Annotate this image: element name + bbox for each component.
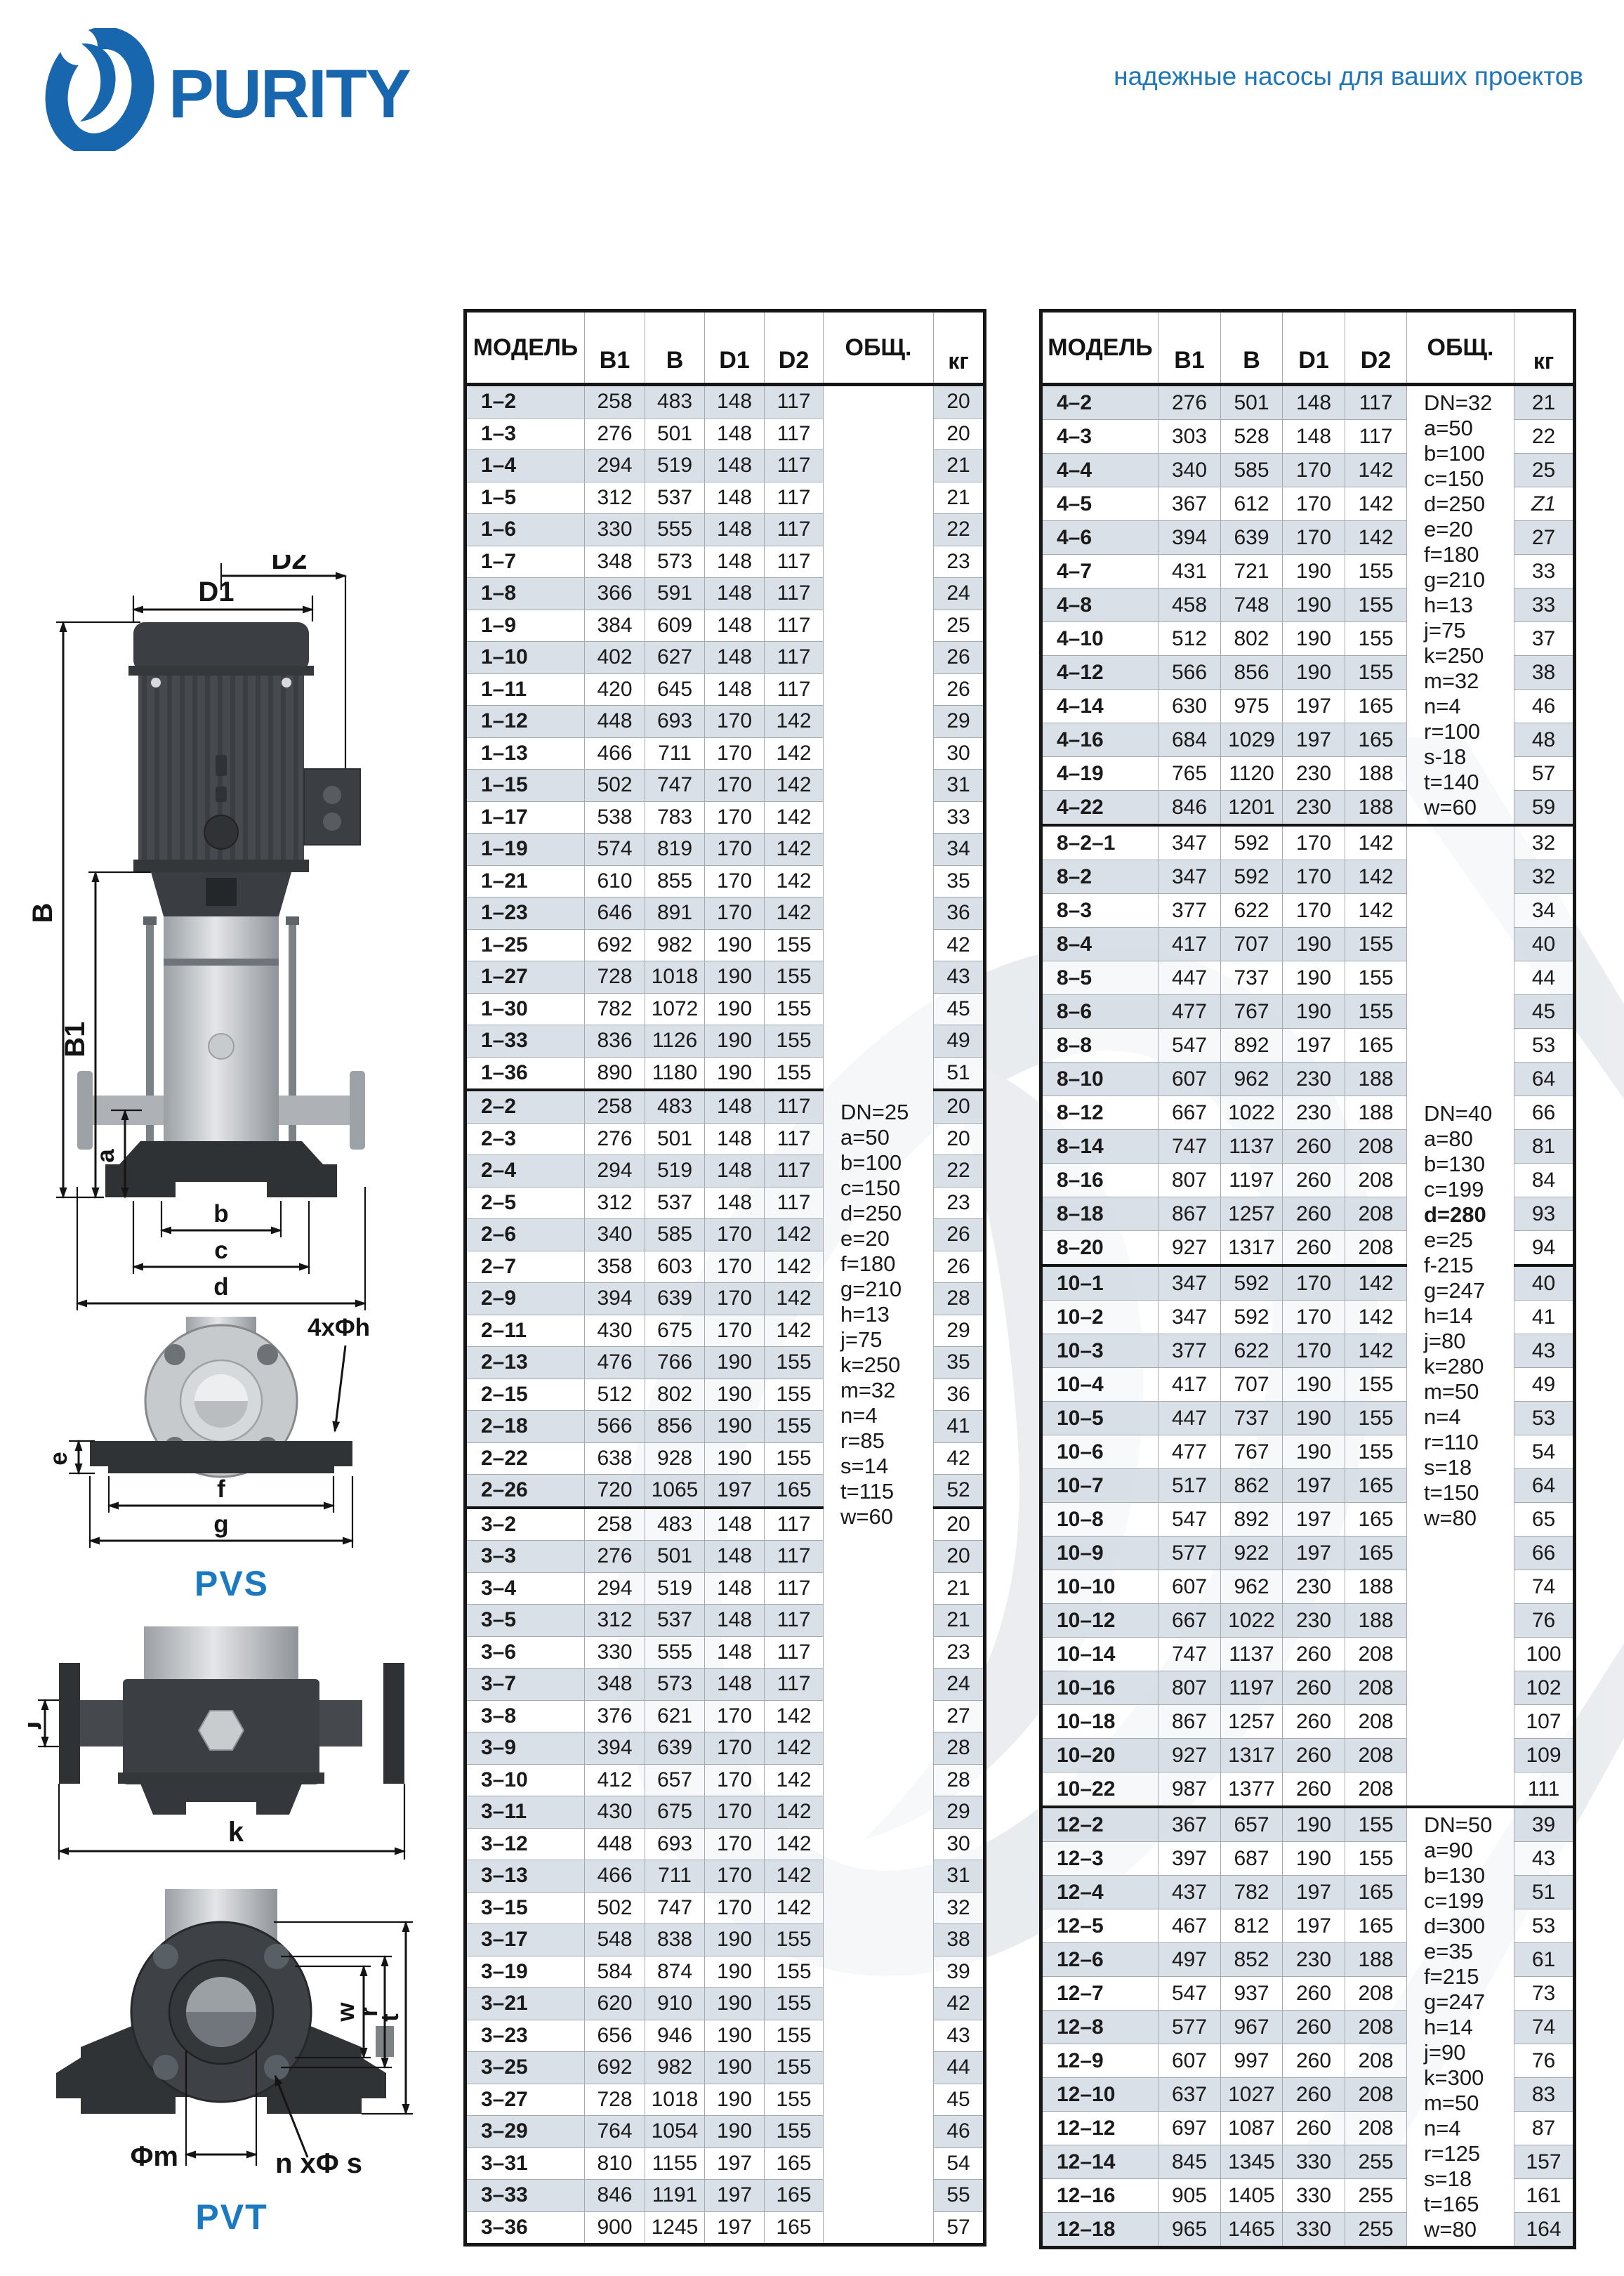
value-cell: 155 bbox=[765, 1347, 824, 1379]
value-cell: 867 bbox=[1158, 1197, 1221, 1231]
value-cell: 190 bbox=[1283, 995, 1345, 1029]
value-cell: 1022 bbox=[1221, 1096, 1283, 1130]
value-cell: 366 bbox=[585, 578, 645, 610]
value-cell: 155 bbox=[765, 1025, 824, 1058]
spec-line: t=115 bbox=[840, 1479, 933, 1504]
spec-line: DN=25 bbox=[840, 1100, 933, 1125]
value-cell: 117 bbox=[765, 418, 824, 450]
value-cell: 330 bbox=[585, 1636, 645, 1669]
spec-line: h=13 bbox=[840, 1302, 933, 1327]
value-cell: 603 bbox=[645, 1251, 705, 1283]
model-cell: 12–10 bbox=[1041, 2078, 1158, 2112]
model-cell: 12–2 bbox=[1041, 1807, 1158, 1842]
model-cell: 4–3 bbox=[1041, 420, 1158, 454]
model-cell: 4–14 bbox=[1041, 690, 1158, 723]
value-cell: 170 bbox=[705, 770, 765, 802]
value-cell: 1317 bbox=[1221, 1739, 1283, 1772]
value-cell: 347 bbox=[1158, 1301, 1221, 1334]
value-cell: 170 bbox=[1283, 487, 1345, 521]
kg-cell: 31 bbox=[934, 1860, 985, 1893]
model-cell: 3–23 bbox=[466, 2020, 585, 2052]
model-cell: 8–5 bbox=[1041, 961, 1158, 995]
pvt-caption: PVT bbox=[28, 2197, 435, 2237]
dim-label-d2: D2 bbox=[271, 555, 307, 575]
value-cell: 142 bbox=[765, 1315, 824, 1347]
value-cell: 142 bbox=[765, 897, 824, 930]
value-cell: 517 bbox=[1158, 1469, 1221, 1503]
value-cell: 693 bbox=[645, 1828, 705, 1860]
value-cell: 155 bbox=[765, 1442, 824, 1475]
value-cell: 622 bbox=[1221, 1334, 1283, 1368]
value-cell: 148 bbox=[705, 1636, 765, 1669]
value-cell: 197 bbox=[1283, 1909, 1345, 1943]
value-cell: 155 bbox=[765, 2052, 824, 2084]
value-cell: 170 bbox=[705, 737, 765, 770]
value-cell: 190 bbox=[1283, 1368, 1345, 1402]
model-cell: 2–22 bbox=[466, 1442, 585, 1475]
value-cell: 260 bbox=[1283, 2112, 1345, 2145]
value-cell: 377 bbox=[1158, 1334, 1221, 1368]
value-cell: 165 bbox=[1345, 1503, 1407, 1537]
kg-cell: 25 bbox=[934, 610, 985, 642]
kg-cell: 42 bbox=[934, 929, 985, 961]
value-cell: 856 bbox=[1221, 656, 1283, 690]
value-cell: 117 bbox=[1345, 420, 1407, 454]
value-cell: 190 bbox=[705, 1411, 765, 1443]
spec-line: a=90 bbox=[1424, 1838, 1514, 1863]
value-cell: 260 bbox=[1283, 1671, 1345, 1705]
value-cell: 447 bbox=[1158, 1402, 1221, 1435]
value-cell: 170 bbox=[705, 1892, 765, 1924]
value-cell: 537 bbox=[645, 1187, 705, 1219]
value-cell: 190 bbox=[705, 929, 765, 961]
value-cell: 417 bbox=[1158, 928, 1221, 961]
value-cell: 142 bbox=[765, 1251, 824, 1283]
model-cell: 3–36 bbox=[466, 2211, 585, 2245]
spec-line: g=210 bbox=[840, 1277, 933, 1302]
spec-line: k=250 bbox=[1424, 643, 1514, 669]
value-cell: 142 bbox=[765, 737, 824, 770]
value-cell: 165 bbox=[1345, 1469, 1407, 1503]
value-cell: 190 bbox=[705, 1025, 765, 1058]
value-cell: 982 bbox=[645, 2052, 705, 2084]
spec-line: r=100 bbox=[1424, 719, 1514, 744]
kg-cell: 59 bbox=[1514, 791, 1575, 826]
value-cell: 807 bbox=[1158, 1164, 1221, 1197]
value-cell: 208 bbox=[1345, 1638, 1407, 1671]
kg-cell: 33 bbox=[934, 801, 985, 834]
value-cell: 117 bbox=[765, 514, 824, 546]
dim-label-k: k bbox=[228, 1817, 244, 1848]
value-cell: 417 bbox=[1158, 1368, 1221, 1402]
model-cell: 2–5 bbox=[466, 1187, 585, 1219]
value-cell: 845 bbox=[1158, 2145, 1221, 2179]
value-cell: 208 bbox=[1345, 2078, 1407, 2112]
kg-cell: 45 bbox=[1514, 995, 1575, 1029]
value-cell: 208 bbox=[1345, 1671, 1407, 1705]
kg-cell: 20 bbox=[934, 385, 985, 419]
value-cell: 155 bbox=[765, 2084, 824, 2116]
kg-cell: 49 bbox=[934, 1025, 985, 1058]
kg-cell: 43 bbox=[934, 2020, 985, 2052]
kg-cell: 32 bbox=[1514, 825, 1575, 860]
value-cell: 190 bbox=[705, 1442, 765, 1475]
kg-cell: 57 bbox=[934, 2211, 985, 2245]
spec-line: n=4 bbox=[840, 1403, 933, 1428]
value-cell: 117 bbox=[765, 1187, 824, 1219]
value-cell: 519 bbox=[645, 450, 705, 482]
value-cell: 1137 bbox=[1221, 1638, 1283, 1671]
value-cell: 155 bbox=[765, 2116, 824, 2148]
spec-line: m=32 bbox=[1424, 669, 1514, 694]
spec-line: h=14 bbox=[1424, 2015, 1514, 2040]
kg-cell: 21 bbox=[1514, 385, 1575, 420]
value-cell: 170 bbox=[705, 706, 765, 738]
value-cell: 555 bbox=[645, 1636, 705, 1669]
value-cell: 170 bbox=[705, 897, 765, 930]
value-cell: 117 bbox=[765, 578, 824, 610]
kg-cell: 21 bbox=[934, 450, 985, 482]
value-cell: 946 bbox=[645, 2020, 705, 2052]
value-cell: 190 bbox=[1283, 1842, 1345, 1876]
value-cell: 630 bbox=[1158, 690, 1221, 723]
table-row: 12–2367657190155DN=50a=90b=130c=199d=300… bbox=[1041, 1807, 1575, 1842]
kg-cell: 87 bbox=[1514, 2112, 1575, 2145]
dim-label-c: c bbox=[214, 1237, 227, 1264]
kg-cell: 20 bbox=[934, 418, 985, 450]
value-cell: 155 bbox=[765, 929, 824, 961]
spec-line: j=75 bbox=[840, 1327, 933, 1353]
value-cell: 155 bbox=[1345, 656, 1407, 690]
value-cell: 170 bbox=[705, 1700, 765, 1732]
value-cell: 477 bbox=[1158, 995, 1221, 1029]
value-cell: 573 bbox=[645, 546, 705, 578]
kg-cell: 46 bbox=[1514, 690, 1575, 723]
model-cell: 2–4 bbox=[466, 1155, 585, 1188]
value-cell: 348 bbox=[585, 546, 645, 578]
value-cell: 384 bbox=[585, 610, 645, 642]
value-cell: 477 bbox=[1158, 1435, 1221, 1469]
value-cell: 577 bbox=[1158, 2011, 1221, 2044]
model-cell: 1–33 bbox=[466, 1025, 585, 1058]
value-cell: 142 bbox=[765, 1860, 824, 1893]
value-cell: 347 bbox=[1158, 1265, 1221, 1301]
value-cell: 260 bbox=[1283, 1977, 1345, 2011]
kg-cell: 73 bbox=[1514, 1977, 1575, 2011]
kg-cell: 32 bbox=[934, 1892, 985, 1924]
model-cell: 10–20 bbox=[1041, 1739, 1158, 1772]
value-cell: 276 bbox=[585, 1123, 645, 1155]
value-cell: 190 bbox=[705, 1924, 765, 1956]
model-cell: 4–8 bbox=[1041, 588, 1158, 622]
spec-line: n=4 bbox=[1424, 1405, 1514, 1430]
kg-cell: 38 bbox=[934, 1924, 985, 1956]
value-cell: 188 bbox=[1345, 1570, 1407, 1604]
value-cell: 230 bbox=[1283, 1096, 1345, 1130]
model-cell: 1–8 bbox=[466, 578, 585, 610]
value-cell: 165 bbox=[1345, 723, 1407, 757]
catalog-page: PURITY надежные насосы для ваших проекто… bbox=[0, 0, 1624, 2276]
kg-cell: Z1 bbox=[1514, 487, 1575, 521]
model-cell: 12–5 bbox=[1041, 1909, 1158, 1943]
value-cell: 170 bbox=[705, 834, 765, 866]
value-cell: 188 bbox=[1345, 757, 1407, 791]
value-cell: 165 bbox=[1345, 1537, 1407, 1570]
kg-cell: 54 bbox=[934, 2147, 985, 2180]
model-cell: 8–8 bbox=[1041, 1029, 1158, 1063]
value-cell: 767 bbox=[1221, 1435, 1283, 1469]
kg-cell: 164 bbox=[1514, 2213, 1575, 2248]
dim-label-d: d bbox=[213, 1273, 228, 1301]
value-cell: 1072 bbox=[645, 993, 705, 1025]
spec-line: n=4 bbox=[1424, 694, 1514, 719]
value-cell: 501 bbox=[645, 418, 705, 450]
value-cell: 1155 bbox=[645, 2147, 705, 2180]
value-cell: 142 bbox=[1345, 454, 1407, 487]
value-cell: 782 bbox=[1221, 1876, 1283, 1909]
value-cell: 512 bbox=[585, 1379, 645, 1411]
kg-cell: 84 bbox=[1514, 1164, 1575, 1197]
model-cell: 8–3 bbox=[1041, 894, 1158, 928]
model-cell: 10–3 bbox=[1041, 1334, 1158, 1368]
model-cell: 10–9 bbox=[1041, 1537, 1158, 1570]
value-cell: 620 bbox=[585, 1988, 645, 2020]
value-cell: 711 bbox=[645, 1860, 705, 1893]
kg-cell: 41 bbox=[1514, 1301, 1575, 1334]
col-header-kg: кг bbox=[934, 311, 985, 385]
value-cell: 170 bbox=[1283, 521, 1345, 555]
value-cell: 1018 bbox=[645, 2084, 705, 2116]
value-cell: 208 bbox=[1345, 1772, 1407, 1808]
kg-cell: 23 bbox=[934, 1636, 985, 1669]
value-cell: 846 bbox=[585, 2180, 645, 2212]
logo-text: PURITY bbox=[169, 55, 411, 132]
value-cell: 1201 bbox=[1221, 791, 1283, 826]
value-cell: 142 bbox=[765, 1764, 824, 1796]
value-cell: 927 bbox=[1158, 1231, 1221, 1266]
kg-cell: 57 bbox=[1514, 757, 1575, 791]
value-cell: 142 bbox=[765, 834, 824, 866]
model-cell: 8–2 bbox=[1041, 860, 1158, 894]
value-cell: 537 bbox=[645, 482, 705, 514]
value-cell: 255 bbox=[1345, 2145, 1407, 2179]
value-cell: 807 bbox=[1158, 1671, 1221, 1705]
spec-line: b=100 bbox=[840, 1150, 933, 1176]
kg-cell: 48 bbox=[1514, 723, 1575, 757]
col-header-kg: кг bbox=[1514, 311, 1575, 385]
value-cell: 1465 bbox=[1221, 2213, 1283, 2248]
value-cell: 483 bbox=[645, 385, 705, 419]
value-cell: 197 bbox=[1283, 690, 1345, 723]
spec-cell: DN=25a=50b=100c=150d=250e=20f=180g=210h=… bbox=[824, 385, 934, 2245]
spec-line: n=4 bbox=[1424, 2116, 1514, 2141]
dim-label-a: a bbox=[92, 1149, 119, 1163]
kg-cell: 29 bbox=[934, 706, 985, 738]
spec-line: f=180 bbox=[1424, 542, 1514, 567]
model-cell: 3–4 bbox=[466, 1572, 585, 1605]
spec-line: t=150 bbox=[1424, 1480, 1514, 1506]
value-cell: 170 bbox=[705, 1828, 765, 1860]
kg-cell: 46 bbox=[934, 2116, 985, 2148]
value-cell: 190 bbox=[705, 2052, 765, 2084]
spec-line: t=140 bbox=[1424, 770, 1514, 795]
value-cell: 592 bbox=[1221, 860, 1283, 894]
value-cell: 721 bbox=[1221, 555, 1283, 588]
value-cell: 962 bbox=[1221, 1063, 1283, 1096]
kg-cell: 33 bbox=[1514, 588, 1575, 622]
callout-nxs: n xΦ s bbox=[275, 2148, 362, 2179]
value-cell: 260 bbox=[1283, 1705, 1345, 1739]
model-cell: 12–7 bbox=[1041, 1977, 1158, 2011]
value-cell: 867 bbox=[1158, 1705, 1221, 1739]
spec-cell: DN=32a=50b=100c=150d=250e=20f=180g=210h=… bbox=[1407, 385, 1514, 826]
value-cell: 155 bbox=[1345, 622, 1407, 656]
value-cell: 117 bbox=[765, 610, 824, 642]
spec-line: c=199 bbox=[1424, 1888, 1514, 1914]
value-cell: 142 bbox=[1345, 1334, 1407, 1368]
value-cell: 117 bbox=[765, 482, 824, 514]
value-cell: 502 bbox=[585, 770, 645, 802]
col-header-b: B bbox=[645, 311, 705, 385]
model-cell: 1–7 bbox=[466, 546, 585, 578]
value-cell: 142 bbox=[1345, 860, 1407, 894]
value-cell: 170 bbox=[705, 1796, 765, 1829]
value-cell: 573 bbox=[645, 1669, 705, 1701]
value-cell: 148 bbox=[705, 1090, 765, 1123]
value-cell: 208 bbox=[1345, 2011, 1407, 2044]
value-cell: 155 bbox=[765, 1956, 824, 1988]
value-cell: 155 bbox=[1345, 928, 1407, 961]
value-cell: 607 bbox=[1158, 2044, 1221, 2078]
value-cell: 646 bbox=[585, 897, 645, 930]
kg-cell: 22 bbox=[934, 1155, 985, 1188]
kg-cell: 20 bbox=[934, 1090, 985, 1123]
model-cell: 12–3 bbox=[1041, 1842, 1158, 1876]
value-cell: 892 bbox=[1221, 1029, 1283, 1063]
value-cell: 117 bbox=[765, 1669, 824, 1701]
value-cell: 747 bbox=[645, 770, 705, 802]
value-cell: 856 bbox=[645, 1411, 705, 1443]
kg-cell: 21 bbox=[934, 1572, 985, 1605]
value-cell: 260 bbox=[1283, 1638, 1345, 1671]
value-cell: 230 bbox=[1283, 791, 1345, 826]
spec-line: m=50 bbox=[1424, 2091, 1514, 2116]
value-cell: 637 bbox=[1158, 2078, 1221, 2112]
value-cell: 155 bbox=[1345, 1435, 1407, 1469]
value-cell: 170 bbox=[705, 1315, 765, 1347]
value-cell: 142 bbox=[765, 1283, 824, 1315]
value-cell: 190 bbox=[705, 1956, 765, 1988]
dim-label-b1: B1 bbox=[60, 1021, 91, 1057]
value-cell: 148 bbox=[705, 514, 765, 546]
value-cell: 437 bbox=[1158, 1876, 1221, 1909]
value-cell: 431 bbox=[1158, 555, 1221, 588]
value-cell: 148 bbox=[1283, 420, 1345, 454]
value-cell: 1022 bbox=[1221, 1604, 1283, 1638]
model-cell: 4–16 bbox=[1041, 723, 1158, 757]
value-cell: 117 bbox=[765, 450, 824, 482]
dim-label-t: t bbox=[376, 2013, 404, 2022]
value-cell: 190 bbox=[1283, 588, 1345, 622]
model-cell: 1–23 bbox=[466, 897, 585, 930]
spec-line: e=20 bbox=[840, 1226, 933, 1251]
value-cell: 117 bbox=[765, 546, 824, 578]
value-cell: 230 bbox=[1283, 757, 1345, 791]
value-cell: 208 bbox=[1345, 1231, 1407, 1266]
kg-cell: 100 bbox=[1514, 1638, 1575, 1671]
kg-cell: 44 bbox=[1514, 961, 1575, 995]
value-cell: 155 bbox=[1345, 1807, 1407, 1842]
value-cell: 170 bbox=[705, 1732, 765, 1765]
kg-cell: 30 bbox=[934, 1828, 985, 1860]
value-cell: 142 bbox=[1345, 521, 1407, 555]
value-cell: 148 bbox=[705, 385, 765, 419]
col-header-total: ОБЩ. bbox=[824, 311, 934, 385]
spec-line: g=247 bbox=[1424, 1989, 1514, 2015]
value-cell: 447 bbox=[1158, 961, 1221, 995]
value-cell: 117 bbox=[765, 1605, 824, 1637]
value-cell: 142 bbox=[765, 1700, 824, 1732]
model-cell: 2–3 bbox=[466, 1123, 585, 1155]
kg-cell: 22 bbox=[1514, 420, 1575, 454]
value-cell: 255 bbox=[1345, 2213, 1407, 2248]
spec-line: DN=40 bbox=[1424, 1101, 1514, 1126]
pvs-caption: PVS bbox=[28, 1563, 435, 1604]
spec-line: r=85 bbox=[840, 1428, 933, 1454]
value-cell: 607 bbox=[1158, 1063, 1221, 1096]
value-cell: 348 bbox=[585, 1669, 645, 1701]
value-cell: 538 bbox=[585, 801, 645, 834]
value-cell: 692 bbox=[585, 2052, 645, 2084]
model-cell: 3–17 bbox=[466, 1924, 585, 1956]
model-cell: 3–6 bbox=[466, 1636, 585, 1669]
model-cell: 2–13 bbox=[466, 1347, 585, 1379]
kg-cell: 34 bbox=[1514, 894, 1575, 928]
model-cell: 1–3 bbox=[466, 418, 585, 450]
value-cell: 190 bbox=[1283, 555, 1345, 588]
kg-cell: 54 bbox=[1514, 1435, 1575, 1469]
value-cell: 1027 bbox=[1221, 2078, 1283, 2112]
kg-cell: 81 bbox=[1514, 1130, 1575, 1164]
value-cell: 783 bbox=[645, 801, 705, 834]
value-cell: 340 bbox=[585, 1219, 645, 1251]
model-cell: 10–8 bbox=[1041, 1503, 1158, 1537]
spec-line: e=20 bbox=[1424, 517, 1514, 542]
table-row: 1–2258483148117DN=25a=50b=100c=150d=250e… bbox=[466, 385, 985, 419]
value-cell: 890 bbox=[585, 1057, 645, 1090]
spec-line: j=80 bbox=[1424, 1329, 1514, 1354]
value-cell: 987 bbox=[1158, 1772, 1221, 1808]
value-cell: 260 bbox=[1283, 1739, 1345, 1772]
model-cell: 1–11 bbox=[466, 673, 585, 706]
value-cell: 294 bbox=[585, 1155, 645, 1188]
value-cell: 260 bbox=[1283, 1772, 1345, 1808]
value-cell: 142 bbox=[1345, 1301, 1407, 1334]
value-cell: 862 bbox=[1221, 1469, 1283, 1503]
value-cell: 900 bbox=[585, 2211, 645, 2245]
value-cell: 657 bbox=[1221, 1807, 1283, 1842]
spec-line: s-18 bbox=[1424, 744, 1514, 770]
value-cell: 260 bbox=[1283, 1231, 1345, 1266]
model-cell: 8–12 bbox=[1041, 1096, 1158, 1130]
value-cell: 548 bbox=[585, 1924, 645, 1956]
value-cell: 466 bbox=[585, 1860, 645, 1893]
value-cell: 155 bbox=[1345, 1402, 1407, 1435]
value-cell: 367 bbox=[1158, 1807, 1221, 1842]
value-cell: 347 bbox=[1158, 860, 1221, 894]
spec-line: g=210 bbox=[1424, 567, 1514, 593]
value-cell: 170 bbox=[1283, 860, 1345, 894]
